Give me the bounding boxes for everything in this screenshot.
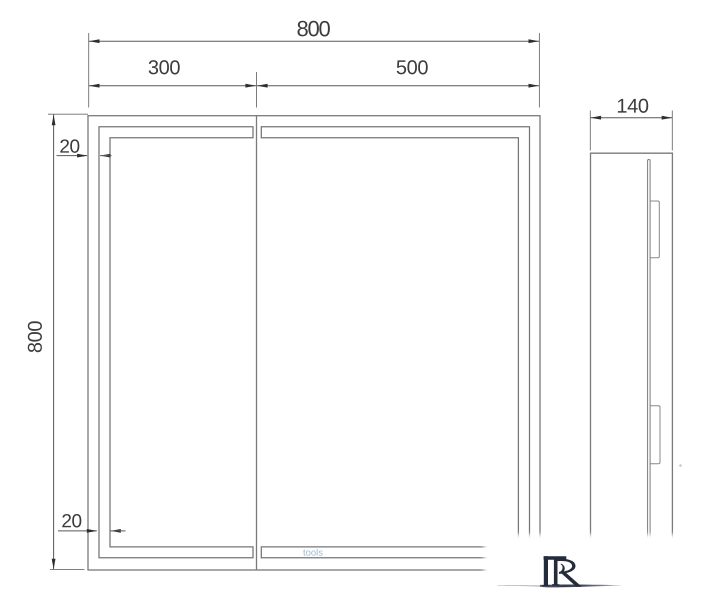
svg-text:140: 140 xyxy=(616,96,648,118)
svg-text:800: 800 xyxy=(25,321,47,353)
svg-text:500: 500 xyxy=(396,57,428,79)
svg-text:800: 800 xyxy=(296,16,330,41)
svg-text:20: 20 xyxy=(59,137,79,158)
svg-text:20: 20 xyxy=(61,511,81,532)
svg-text:tools: tools xyxy=(303,548,323,559)
svg-text:300: 300 xyxy=(148,57,180,79)
